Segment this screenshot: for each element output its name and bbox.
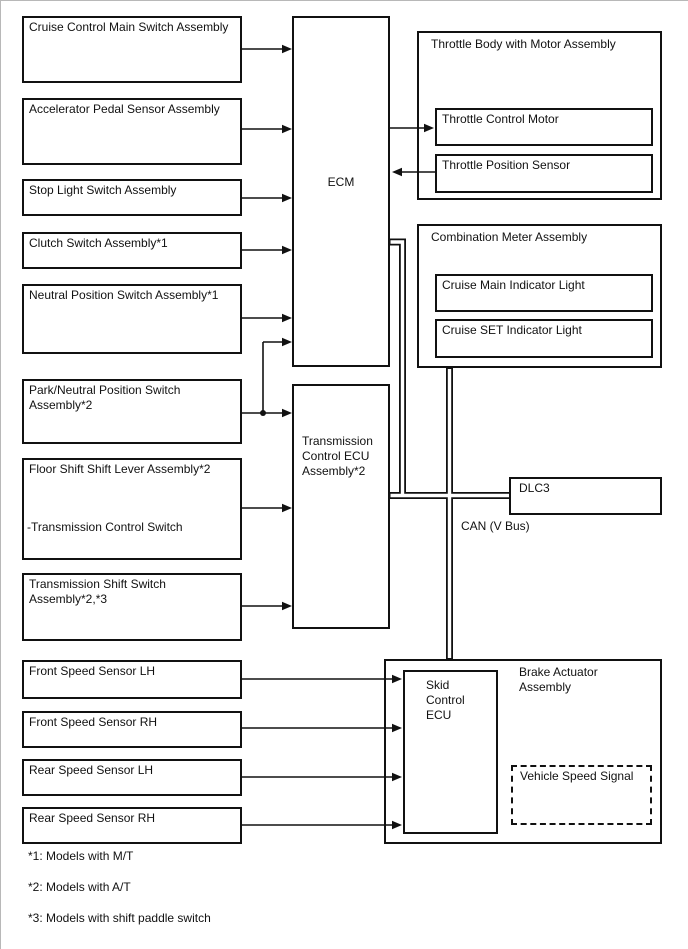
- node-cruise-control-main-switch: Cruise Control Main Switch Assembly: [22, 16, 242, 83]
- node-label: Cruise Main Indicator Light: [442, 278, 585, 292]
- wiring-diagram: Cruise Control Main Switch Assembly Acce…: [0, 0, 688, 949]
- arrow-clutch-switch-to-ecm: [242, 246, 292, 254]
- node-label: Combination Meter Assembly: [431, 230, 587, 244]
- node-throttle-control-motor: Throttle Control Motor: [435, 108, 653, 146]
- node-sublabel-transmission-control-switch: -Transmission Control Switch: [27, 520, 183, 535]
- arrow-rear-lh-to-skid-ecu: [242, 773, 402, 781]
- node-label: Cruise SET Indicator Light: [442, 323, 582, 337]
- node-label: Rear Speed Sensor RH: [29, 811, 155, 825]
- node-front-speed-sensor-lh: Front Speed Sensor LH: [22, 660, 242, 699]
- node-clutch-switch: Clutch Switch Assembly*1: [22, 232, 242, 269]
- node-neutral-position-switch: Neutral Position Switch Assembly*1: [22, 284, 242, 354]
- arrow-rear-rh-to-skid-ecu: [242, 821, 402, 829]
- arrow-front-lh-to-skid-ecu: [242, 675, 402, 683]
- arrow-neutral-position-to-ecm: [242, 314, 292, 322]
- node-vehicle-speed-signal: Vehicle Speed Signal: [511, 765, 652, 825]
- node-label: Floor Shift Shift Lever Assembly*2: [29, 462, 210, 476]
- footnote-2: *2: Models with A/T: [28, 880, 131, 895]
- arrow-front-rh-to-skid-ecu: [242, 724, 402, 732]
- node-front-speed-sensor-rh: Front Speed Sensor RH: [22, 711, 242, 748]
- arrow-accel-pedal-to-ecm: [242, 125, 292, 133]
- node-label: Accelerator Pedal Sensor Assembly: [29, 102, 220, 116]
- node-stop-light-switch: Stop Light Switch Assembly: [22, 179, 242, 216]
- node-label: DLC3: [519, 481, 550, 495]
- node-cruise-main-indicator-light: Cruise Main Indicator Light: [435, 274, 653, 312]
- node-transmission-control-ecu: Transmission Control ECU Assembly*2: [292, 384, 390, 629]
- node-label: Rear Speed Sensor LH: [29, 763, 153, 777]
- node-label: Front Speed Sensor LH: [29, 664, 155, 678]
- node-label: Transmission Shift Switch Assembly*2,*3: [29, 577, 166, 606]
- node-label: Throttle Control Motor: [442, 112, 559, 126]
- node-skid-control-ecu: Skid Control ECU: [403, 670, 498, 834]
- node-accelerator-pedal-sensor: Accelerator Pedal Sensor Assembly: [22, 98, 242, 165]
- arrow-cruise-main-to-ecm: [242, 45, 292, 53]
- node-label: Vehicle Speed Signal: [520, 769, 633, 783]
- arrow-stop-light-to-ecm: [242, 194, 292, 202]
- arrow-trans-shift-to-trans-ecu: [242, 602, 292, 610]
- footnote-3: *3: Models with shift paddle switch: [28, 911, 211, 926]
- node-label: Throttle Position Sensor: [442, 158, 570, 172]
- node-label: Throttle Body with Motor Assembly: [431, 37, 616, 51]
- footnote-1: *1: Models with M/T: [28, 849, 133, 864]
- node-label: Brake Actuator Assembly: [519, 665, 644, 695]
- node-park-neutral-position-switch: Park/Neutral Position Switch Assembly*2: [22, 379, 242, 444]
- node-label: Park/Neutral Position Switch Assembly*2: [29, 383, 180, 412]
- node-rear-speed-sensor-rh: Rear Speed Sensor RH: [22, 807, 242, 844]
- node-label: ECM: [294, 175, 388, 190]
- node-floor-shift-lever: Floor Shift Shift Lever Assembly*2 -Tran…: [22, 458, 242, 560]
- node-rear-speed-sensor-lh: Rear Speed Sensor LH: [22, 759, 242, 796]
- node-label: Skid Control ECU: [426, 678, 478, 723]
- node-label: Transmission Control ECU Assembly*2: [302, 434, 373, 478]
- node-cruise-set-indicator-light: Cruise SET Indicator Light: [435, 319, 653, 358]
- node-transmission-shift-switch: Transmission Shift Switch Assembly*2,*3: [22, 573, 242, 641]
- can-bus-label: CAN (V Bus): [461, 519, 530, 534]
- node-label: Stop Light Switch Assembly: [29, 183, 176, 197]
- node-label: Cruise Control Main Switch Assembly: [29, 20, 228, 34]
- node-label: Front Speed Sensor RH: [29, 715, 157, 729]
- node-dlc3: DLC3: [509, 477, 662, 515]
- node-ecm: ECM: [292, 16, 390, 367]
- node-label: Clutch Switch Assembly*1: [29, 236, 168, 250]
- arrow-floor-shift-to-trans-ecu: [242, 504, 292, 512]
- arrow-park-neutral-branch: [242, 338, 292, 417]
- node-throttle-position-sensor: Throttle Position Sensor: [435, 154, 653, 193]
- node-label: Neutral Position Switch Assembly*1: [29, 288, 218, 302]
